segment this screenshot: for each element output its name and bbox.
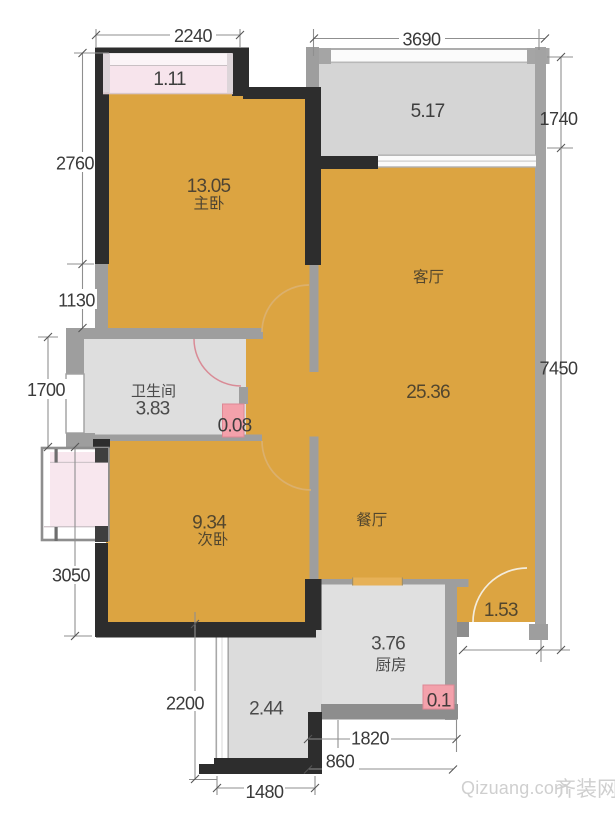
svg-text:1740: 1740 — [539, 109, 578, 129]
svg-text:2200: 2200 — [166, 694, 205, 714]
svg-text:主卧: 主卧 — [193, 195, 224, 213]
svg-text:25.36: 25.36 — [406, 382, 450, 403]
svg-text:7450: 7450 — [539, 359, 578, 379]
svg-text:1130: 1130 — [58, 291, 95, 311]
svg-text:9.34: 9.34 — [192, 513, 227, 534]
svg-text:卫生间: 卫生间 — [131, 383, 176, 400]
svg-text:3.76: 3.76 — [371, 634, 405, 655]
svg-text:860: 860 — [326, 752, 355, 772]
svg-text:餐厅: 餐厅 — [356, 511, 387, 529]
svg-text:齐装网: 齐装网 — [555, 778, 615, 801]
svg-text:2.44: 2.44 — [249, 699, 284, 720]
svg-text:3690: 3690 — [402, 30, 441, 50]
svg-text:次卧: 次卧 — [197, 531, 228, 549]
svg-text:1820: 1820 — [351, 729, 390, 749]
svg-text:1.53: 1.53 — [484, 600, 518, 621]
svg-text:厨房: 厨房 — [375, 656, 406, 674]
svg-text:3050: 3050 — [52, 566, 91, 586]
svg-text:3.83: 3.83 — [136, 399, 170, 420]
svg-text:1700: 1700 — [27, 380, 66, 400]
svg-text:13.05: 13.05 — [187, 176, 231, 197]
svg-text:2240: 2240 — [174, 26, 213, 46]
svg-text:2760: 2760 — [56, 154, 95, 174]
svg-text:1480: 1480 — [245, 782, 284, 802]
svg-text:5.17: 5.17 — [411, 101, 445, 122]
svg-text:0.08: 0.08 — [218, 416, 252, 437]
svg-text:客厅: 客厅 — [413, 268, 444, 286]
svg-text:0.1: 0.1 — [427, 691, 451, 712]
svg-text:1.11: 1.11 — [153, 69, 186, 90]
svg-text:Qizuang.com: Qizuang.com — [461, 778, 569, 798]
